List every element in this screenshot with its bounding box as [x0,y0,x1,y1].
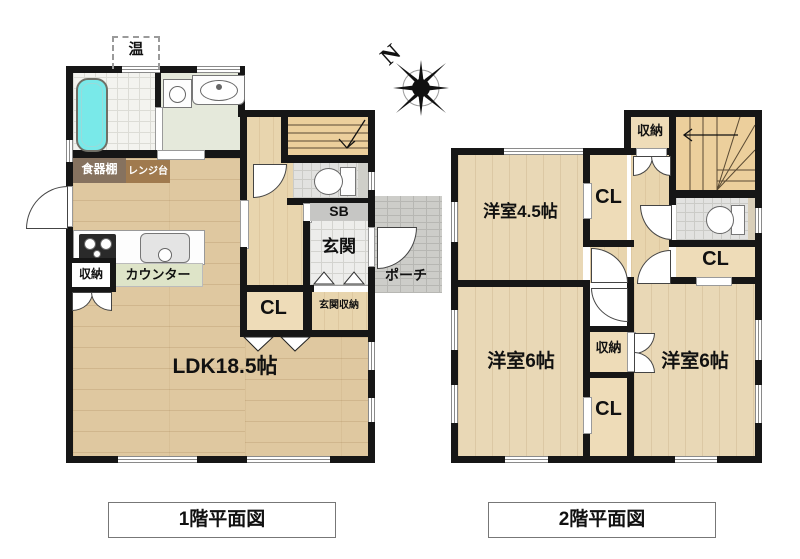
toilet-bowl-2f [706,206,734,234]
counter-label: カウンター [113,268,203,282]
stove-burner [84,238,96,250]
bathtub [76,78,108,152]
washing-machine-drum [169,86,186,103]
wall [583,372,634,378]
wall [669,190,762,198]
toilet-side-counter [748,198,755,240]
staircase-2f-treads [676,117,755,190]
wall [624,110,762,117]
genkan-storage-floor [310,292,368,330]
window [451,385,458,423]
genkan-label: 玄関 [310,238,368,257]
bathroom-folding-door [155,107,163,155]
shuno-top-label: 収納 [629,124,671,138]
window [451,202,458,242]
stove-burner [93,250,101,258]
wall [303,221,310,287]
floor-plan-page: 温 LDK18.5帖 玄関 SB CL 玄関収納 ポーチ 食器棚 レンジ台 カウ… [0,0,800,559]
window [451,310,458,350]
window [247,456,330,463]
wall [238,110,375,117]
range-stand-label: レンジ台 [126,166,170,177]
cl-top-label: CL [590,186,627,208]
kitchen-door-swing [26,186,68,229]
dish-shelf-label: 食器棚 [73,163,126,176]
water-heater-label: 温 [112,42,160,59]
wall [583,326,634,332]
genkan-step-marks [312,271,368,285]
cl-bottom-label: CL [590,398,627,420]
window [755,385,762,423]
floor1-caption-box: 1階平面図 [108,502,336,538]
cl-right-opening [696,277,732,286]
room6-left-label: 洋室6帖 [465,352,577,373]
cl-1f-label: CL [240,297,307,319]
wall [281,155,375,163]
window [675,456,717,463]
basin-faucet [216,84,222,90]
window [504,148,583,155]
wall [155,73,161,107]
window [66,140,73,162]
window [368,172,375,190]
room6-right-label: 洋室6帖 [645,352,745,373]
porch-label: ポーチ [374,268,438,283]
sb-label: SB [310,204,368,219]
wall [583,240,634,247]
wall [669,240,762,247]
window [118,456,197,463]
wall [240,110,247,200]
toilet-cabinet-1f [358,163,368,198]
window [368,342,375,370]
wall [281,110,288,158]
window [197,66,240,73]
toilet-bowl-1f [314,168,343,195]
entrance-door-opening [368,227,375,267]
stove-burner [100,238,112,250]
genkan-storage-label: 玄関収納 [308,300,370,311]
staircase-1f-treads [287,117,368,155]
kitchen-storage-label: 収納 [68,268,114,281]
ldk-hall-sliding-door [240,200,249,249]
washroom-sliding-door [157,150,205,160]
floor1-caption: 1階平面図 [179,509,266,530]
cl-right-label: CL [676,248,755,270]
wall [240,247,247,287]
genkan-step [310,285,368,292]
floor2-caption-box: 2階平面図 [488,502,716,538]
wall [451,280,590,287]
ldk-label: LDK18.5帖 [158,355,292,378]
window [368,398,375,422]
room45-label: 洋室4.5帖 [463,203,578,222]
sink-drain [158,248,172,262]
floor2-caption: 2階平面図 [559,509,646,530]
window [755,320,762,360]
cl-1f-doors [243,336,313,352]
wall [669,198,676,205]
room6-left-door [591,288,628,322]
shuno-mid-label: 収納 [586,341,631,355]
window [755,208,762,233]
window [505,456,548,463]
